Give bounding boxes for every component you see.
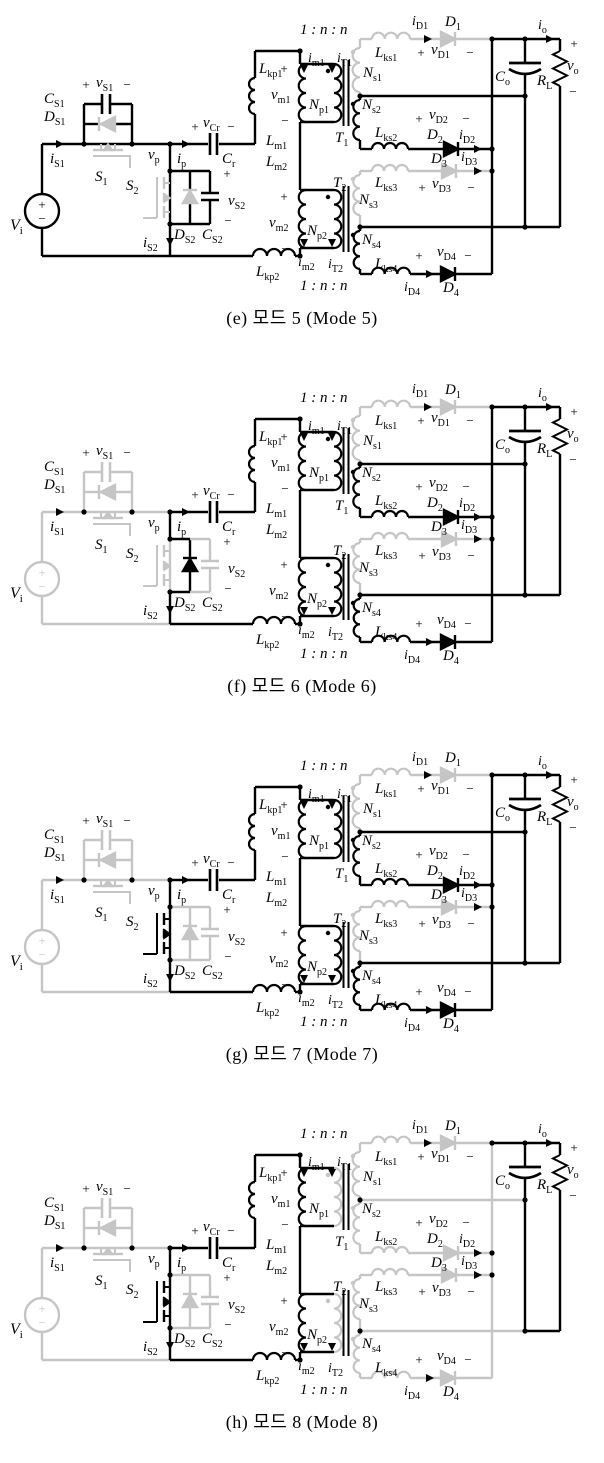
label-is1: iS1 — [50, 151, 65, 170]
label-id2: iD2 — [459, 496, 475, 514]
junction-dot — [522, 829, 527, 834]
junction-dot — [351, 102, 355, 106]
minus-sign: − — [123, 1181, 130, 1196]
mosfet-arrow — [104, 881, 112, 887]
label-ns4: Ns4 — [361, 1336, 381, 1355]
label-s1: S1 — [95, 905, 108, 924]
label-ratio: 1 : n : n — [300, 1126, 348, 1142]
plus-sign: + — [191, 487, 198, 502]
label-vm2: vm2 — [269, 215, 288, 234]
label-vd2: vD2 — [429, 1211, 448, 1230]
gate-lead — [123, 156, 130, 168]
inductor-coil — [353, 416, 360, 460]
plus-sign: + — [38, 933, 45, 948]
junction-dot — [522, 1197, 527, 1202]
junction-dot — [351, 838, 355, 842]
figure-caption: (g) 모드 7 (Mode 7) — [0, 1040, 604, 1066]
junction-dot — [326, 563, 330, 567]
minus-sign: − — [464, 248, 471, 263]
label-vp: vp — [148, 147, 160, 166]
label-vcr: vCr — [203, 115, 220, 134]
current-arrow-icon — [56, 140, 64, 148]
diode — [441, 400, 455, 414]
label-lks1: Lks1 — [374, 45, 397, 64]
label-lm1: Lm1 — [265, 1237, 287, 1256]
t1-core — [344, 60, 349, 126]
gate-lead — [123, 892, 130, 904]
t2-core — [344, 554, 349, 620]
label-vo: vo — [567, 1162, 579, 1181]
minus-sign: − — [467, 548, 474, 563]
label-vo: vo — [567, 426, 579, 445]
label-s2: S2 — [126, 914, 139, 933]
label-np2: Np2 — [306, 1327, 327, 1346]
label-lm1: Lm1 — [265, 133, 287, 152]
label-io: io — [538, 754, 547, 772]
label-np2: Np2 — [306, 223, 327, 242]
resistor — [553, 787, 567, 822]
junction-dot — [326, 437, 330, 441]
label-ns3: Ns3 — [358, 192, 378, 211]
sec1 — [353, 32, 492, 96]
junction-dot — [326, 1173, 330, 1177]
label-t1: T1 — [335, 1234, 348, 1253]
label-vm1: vm1 — [271, 823, 290, 842]
label-vs2: vS2 — [228, 561, 245, 580]
inductor-coil — [334, 64, 341, 122]
circuit-schematic-mode-5: +−ViiS1CS1DS1+vS1−S1vpip+vCr−CrLkp1S2DS2… — [0, 6, 604, 302]
label-lm2: Lm2 — [265, 522, 287, 541]
current-arrow-icon — [182, 876, 190, 884]
ds2-sym — [183, 926, 197, 939]
junction-dot — [297, 784, 302, 789]
body-diode — [101, 485, 115, 499]
junction-dot — [489, 1272, 494, 1277]
plus-sign: + — [38, 565, 45, 580]
ds2-sym — [183, 558, 197, 571]
label-d4: D4 — [442, 1384, 459, 1403]
label-is2: iS2 — [143, 603, 158, 622]
circuit-schematic-mode-8: +−ViiS1CS1DS1+vS1−S1vpip+vCr−CrLkp1S2DS2… — [0, 1110, 604, 1406]
minus-sign: − — [224, 1317, 231, 1332]
label-im2: im2 — [298, 623, 315, 641]
t1-np — [334, 1168, 341, 1226]
label-d2: D2 — [426, 127, 443, 146]
label-im2: im2 — [298, 255, 315, 273]
junction-dot — [357, 1328, 362, 1333]
current-arrow-icon — [474, 167, 482, 175]
inductor-coil — [353, 48, 360, 92]
current-arrow-icon — [474, 881, 482, 889]
label-is1: iS1 — [50, 519, 65, 538]
sec3 — [353, 164, 492, 227]
mosfet-arrow — [165, 931, 170, 938]
label-is2: iS2 — [143, 1339, 158, 1358]
junction-dot — [351, 545, 355, 549]
ds1-sym — [99, 853, 115, 867]
junction-dot — [167, 1245, 172, 1250]
label-ds2: DS2 — [173, 595, 195, 614]
current-arrow-icon — [474, 535, 482, 543]
mosfet-arrow — [104, 1249, 112, 1255]
s1-branch — [84, 94, 132, 144]
label-lkp2: Lkp2 — [255, 1368, 279, 1387]
inductor-coil — [372, 1269, 408, 1275]
label-rl: RL — [536, 73, 552, 92]
diode — [444, 878, 458, 892]
plus-sign: + — [191, 1223, 198, 1238]
label-vm2: vm2 — [269, 583, 288, 602]
label-is2: iS2 — [143, 971, 158, 990]
inductor-coil — [353, 784, 360, 828]
label-lkp1: Lkp1 — [258, 61, 282, 80]
minus-sign: − — [281, 481, 288, 496]
current-arrow-icon — [300, 1169, 308, 1177]
current-arrow-icon — [546, 35, 554, 43]
label-s2: S2 — [126, 178, 139, 197]
plus-sign: + — [280, 925, 287, 940]
junction-dot — [489, 146, 494, 151]
label-ratio: 1 : n : n — [300, 22, 348, 38]
minus-sign: − — [467, 916, 474, 931]
label-ds2: DS2 — [173, 963, 195, 982]
minus-sign: − — [227, 119, 234, 134]
label-lks2: Lks2 — [374, 493, 397, 512]
plus-sign: + — [280, 61, 287, 76]
label-io: io — [538, 386, 547, 404]
label-is2: iS2 — [143, 235, 158, 254]
label-co: Co — [495, 805, 510, 824]
label-lks1: Lks1 — [374, 413, 397, 432]
diode — [441, 267, 455, 281]
label-ns2: Ns2 — [361, 833, 381, 852]
inductor-coil — [372, 33, 410, 39]
junction-dot — [129, 1245, 134, 1250]
junction-dot — [522, 592, 527, 597]
mosfet-arrow — [104, 513, 112, 519]
label-lkp2: Lkp2 — [255, 264, 279, 283]
label-cs1: CS1 — [44, 1195, 65, 1214]
sec3 — [353, 532, 492, 595]
t1-np — [334, 64, 341, 122]
label-co: Co — [495, 1173, 510, 1192]
label-lm1: Lm1 — [265, 501, 287, 520]
label-ratio: 1 : n : n — [300, 646, 348, 662]
label-ns2: Ns2 — [361, 1201, 381, 1220]
label-s2: S2 — [126, 1282, 139, 1301]
minus-sign: − — [123, 813, 130, 828]
inductor-coil — [299, 800, 306, 858]
junction-dot — [351, 233, 355, 237]
label-id1: iD1 — [412, 14, 428, 32]
minus-sign: − — [281, 113, 288, 128]
diode — [444, 510, 458, 524]
junction-dot — [489, 514, 494, 519]
label-ds1: DS1 — [43, 1213, 65, 1232]
plus-sign: + — [415, 248, 422, 263]
label-lks1: Lks1 — [374, 1149, 397, 1168]
t1-core — [344, 796, 349, 862]
label-ratio: 1 : n : n — [300, 1014, 348, 1030]
label-vm1: vm1 — [271, 1191, 290, 1210]
label-vs2: vS2 — [228, 929, 245, 948]
s2-mos-sym — [143, 545, 170, 586]
junction-dot — [129, 877, 134, 882]
label-np1: Np1 — [308, 1201, 329, 1220]
label-vm2: vm2 — [269, 1319, 288, 1338]
junction-dot — [489, 1140, 494, 1145]
junction-dot — [522, 1328, 527, 1333]
junction-dot — [326, 805, 330, 809]
junction-dot — [522, 93, 527, 98]
minus-sign: − — [123, 445, 130, 460]
junction-dot — [81, 141, 86, 146]
junction-dot — [167, 589, 172, 594]
plus-sign: + — [280, 189, 287, 204]
current-arrow-icon — [426, 638, 434, 646]
label-vs1: vS1 — [96, 443, 113, 462]
label-vm2: vm2 — [269, 951, 288, 970]
current-arrow-icon — [474, 1249, 482, 1257]
plus-sign: + — [415, 847, 422, 862]
label-lkp1: Lkp1 — [258, 1165, 282, 1184]
gate-lead — [123, 524, 130, 536]
label-is1: iS1 — [50, 1255, 65, 1274]
junction-dot — [489, 36, 494, 41]
label-lks3: Lks3 — [374, 175, 397, 194]
junction-dot — [129, 509, 134, 514]
label-d1: D1 — [444, 1118, 461, 1137]
minus-sign: − — [123, 77, 130, 92]
label-lkp1: Lkp1 — [258, 429, 282, 448]
t1-core — [344, 1164, 349, 1230]
label-cs2: CS2 — [202, 963, 223, 982]
current-arrow-icon — [182, 508, 190, 516]
label-id4: iD4 — [404, 648, 420, 666]
label-lks4: Lks4 — [374, 624, 397, 643]
plus-sign: + — [82, 445, 89, 460]
plus-sign: + — [38, 197, 45, 212]
minus-sign: − — [281, 609, 288, 624]
label-ratio: 1 : n : n — [300, 278, 348, 294]
inductor-coil — [372, 1137, 410, 1143]
label-id4: iD4 — [404, 1016, 420, 1034]
plus-sign: + — [280, 797, 287, 812]
inductor-coil — [249, 78, 255, 114]
label-id2: iD2 — [459, 864, 475, 882]
junction-dot — [489, 1250, 494, 1255]
s1-mos-sym — [93, 880, 130, 904]
inductor-coil — [372, 401, 410, 407]
label-d4: D4 — [442, 280, 459, 299]
label-vi: Vi — [10, 217, 23, 237]
figure-mode-7: +−ViiS1CS1DS1+vS1−S1vpip+vCr−CrLkp1S2DS2… — [0, 742, 604, 1066]
s1-mos-sym — [93, 144, 130, 168]
junction-dot — [326, 1299, 330, 1303]
label-vcr: vCr — [203, 483, 220, 502]
plus-sign: + — [82, 813, 89, 828]
label-s1: S1 — [95, 1273, 108, 1292]
plus-sign: + — [570, 404, 577, 419]
current-arrow-icon — [182, 140, 190, 148]
label-t1: T1 — [335, 498, 348, 517]
s1-branch — [84, 462, 132, 512]
label-id1: iD1 — [412, 750, 428, 768]
label-lm2: Lm2 — [265, 1258, 287, 1277]
label-vi: Vi — [10, 585, 23, 605]
label-cs2: CS2 — [202, 1331, 223, 1350]
current-arrow-icon — [328, 607, 336, 615]
resistor — [553, 419, 567, 454]
plus-sign: + — [82, 1181, 89, 1196]
label-lm1: Lm1 — [265, 869, 287, 888]
label-ns2: Ns2 — [361, 465, 381, 484]
co-branch — [509, 407, 541, 595]
minus-sign: − — [569, 820, 576, 835]
plus-sign: + — [223, 534, 230, 549]
minus-sign: − — [464, 616, 471, 631]
minus-sign: − — [466, 45, 473, 60]
plus-sign: + — [191, 119, 198, 134]
minus-sign: − — [224, 949, 231, 964]
label-d1: D1 — [444, 750, 461, 769]
inductor-coil — [372, 901, 408, 907]
inductor-coil — [372, 165, 408, 171]
plus-sign: + — [280, 1165, 287, 1180]
ds1-sym — [99, 117, 115, 131]
co-branch — [509, 775, 541, 963]
junction-dot — [522, 772, 527, 777]
current-arrow-icon — [166, 238, 174, 246]
label-vd2: vD2 — [429, 475, 448, 494]
t2-core — [344, 1290, 349, 1356]
ds2-sym — [183, 1294, 197, 1307]
label-ip: ip — [177, 887, 186, 906]
label-vp: vp — [148, 515, 160, 534]
minus-sign: − — [462, 479, 469, 494]
inductor-coil — [353, 100, 360, 140]
diode — [441, 32, 455, 46]
junction-dot — [357, 224, 362, 229]
label-rl: RL — [536, 441, 552, 460]
label-d4: D4 — [442, 1016, 459, 1035]
inductor-coil — [353, 1152, 360, 1196]
plus-sign: + — [38, 1301, 45, 1316]
minus-sign: − — [467, 1284, 474, 1299]
label-id2: iD2 — [459, 1232, 475, 1250]
junction-dot — [326, 195, 330, 199]
sec1 — [353, 768, 492, 832]
label-vs1: vS1 — [96, 75, 113, 94]
plus-sign: + — [415, 1215, 422, 1230]
inductor-coil — [372, 769, 410, 775]
minus-sign: − — [569, 84, 576, 99]
label-d2: D2 — [426, 1231, 443, 1250]
inductor-coil — [354, 231, 360, 269]
junction-dot — [522, 461, 527, 466]
current-arrow-icon — [546, 1139, 554, 1147]
label-lks2: Lks2 — [374, 125, 397, 144]
circuit-schematic-mode-7: +−ViiS1CS1DS1+vS1−S1vpip+vCr−CrLkp1S2DS2… — [0, 742, 604, 1038]
junction-dot — [522, 1140, 527, 1145]
junction-dot — [167, 877, 172, 882]
resistor — [553, 51, 567, 86]
plus-sign: + — [415, 1352, 422, 1367]
label-lkp1: Lkp1 — [258, 797, 282, 816]
minus-sign: − — [227, 855, 234, 870]
body-diode — [183, 559, 197, 571]
plus-sign: + — [223, 1270, 230, 1285]
label-id1: iD1 — [412, 1118, 428, 1136]
label-t1: T1 — [335, 130, 348, 149]
label-vcr: vCr — [203, 1219, 220, 1238]
t2-core — [344, 186, 349, 252]
gate-lead — [123, 1260, 130, 1272]
label-vs2: vS2 — [228, 1297, 245, 1316]
junction-dot — [351, 50, 355, 54]
label-ns1: Ns1 — [362, 801, 382, 820]
inductor-coil — [299, 1168, 306, 1226]
rl-branch — [525, 39, 567, 227]
label-it2: iT2 — [328, 1361, 343, 1379]
junction-dot — [357, 592, 362, 597]
label-ns1: Ns1 — [362, 433, 382, 452]
body-diode — [183, 191, 197, 203]
label-d4: D4 — [442, 648, 459, 667]
junction-dot — [351, 1337, 355, 1341]
minus-sign: − — [464, 1352, 471, 1367]
label-ns3: Ns3 — [358, 928, 378, 947]
minus-sign: − — [281, 849, 288, 864]
current-arrow-icon — [426, 1006, 434, 1014]
label-vd4: vD4 — [437, 1348, 456, 1367]
sec3 — [353, 900, 492, 963]
minus-sign: − — [569, 1188, 576, 1203]
minus-sign: − — [462, 847, 469, 862]
label-ns2: Ns2 — [361, 97, 381, 116]
label-cs1: CS1 — [44, 459, 65, 478]
inductor-coil — [353, 1204, 360, 1244]
minus-sign: − — [462, 1215, 469, 1230]
label-im1: im1 — [308, 51, 325, 69]
label-vs2: vS2 — [228, 193, 245, 212]
current-arrow-icon — [56, 508, 64, 516]
label-id1: iD1 — [412, 382, 428, 400]
junction-dot — [489, 772, 494, 777]
junction-dot — [297, 48, 302, 53]
plus-sign: + — [415, 616, 422, 631]
label-is1: iS1 — [50, 887, 65, 906]
sec1 — [353, 1136, 492, 1200]
figure-mode-6: +−ViiS1CS1DS1+vS1−S1vpip+vCr−CrLkp1S2DS2… — [0, 374, 604, 698]
minus-sign: − — [224, 213, 231, 228]
minus-sign: − — [569, 452, 576, 467]
ds1-sym — [99, 1221, 115, 1235]
label-lkp2: Lkp2 — [255, 632, 279, 651]
figure-caption: (h) 모드 8 (Mode 8) — [0, 1408, 604, 1434]
inductor-coil — [334, 432, 341, 490]
mosfet-arrow — [104, 145, 112, 151]
plus-sign: + — [415, 111, 422, 126]
inductor-coil — [354, 967, 360, 1005]
label-lkp2: Lkp2 — [255, 1000, 279, 1019]
label-lks4: Lks4 — [374, 992, 397, 1011]
label-id3: iD3 — [461, 1254, 477, 1272]
rl-branch — [525, 1143, 567, 1331]
label-ratio: 1 : n : n — [300, 390, 348, 406]
current-arrow-icon — [166, 1342, 174, 1350]
label-ip: ip — [177, 519, 186, 538]
